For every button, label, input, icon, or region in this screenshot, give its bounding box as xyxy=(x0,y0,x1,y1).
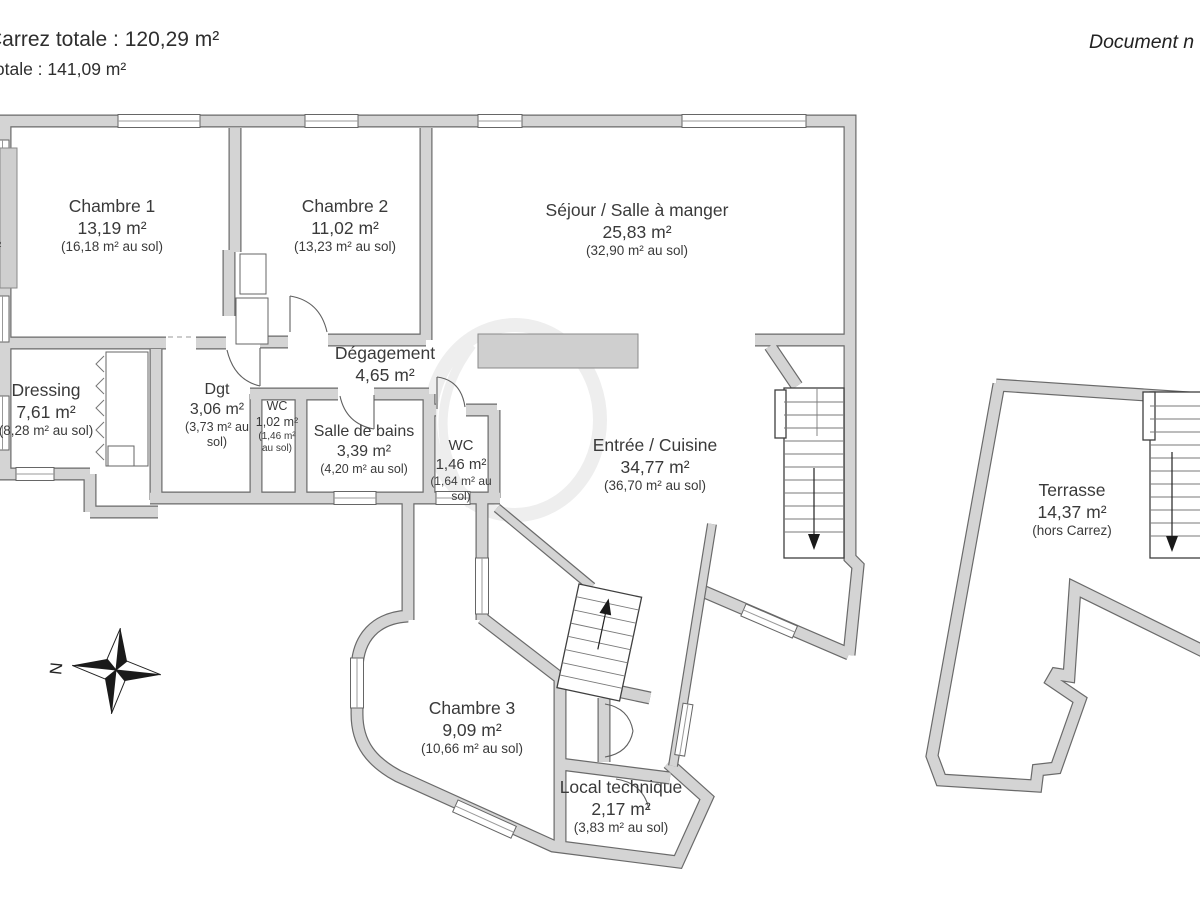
cupboard xyxy=(236,298,268,344)
window-icon xyxy=(682,115,806,128)
cupboard xyxy=(240,254,266,294)
room-label-dgt: Dgt 3,06 m² (3,73 m² au sol) xyxy=(181,380,253,451)
room-label-chambre2: Chambre 2 11,02 m² (13,23 m² au sol) xyxy=(245,196,445,256)
room-label-local-technique: Local technique 2,17 m² (3,83 m² au sol) xyxy=(521,777,721,837)
floorplan-page: N Carrez totale : 120,29 m² totale : 141… xyxy=(0,0,1200,900)
window-icon xyxy=(351,658,364,708)
window-icon xyxy=(118,115,200,128)
door-icon xyxy=(290,296,327,332)
window-icon xyxy=(305,115,358,128)
room-label-chambre3: Chambre 3 9,09 m² (10,66 m² au sol) xyxy=(372,698,572,758)
room-label-sejour: Séjour / Salle à manger 25,83 m² (32,90 … xyxy=(512,200,762,260)
room-label-chambre1: Chambre 1 13,19 m² (16,18 m² au sol) xyxy=(12,196,212,256)
carrez-total-label: Carrez totale : 120,29 m² xyxy=(0,28,219,52)
staircase-interior xyxy=(557,584,642,701)
window-icon xyxy=(16,468,54,481)
kitchen-counter xyxy=(478,334,638,368)
document-note: Document n xyxy=(1089,31,1194,54)
room-label-degagement: Dégagement 4,65 m² xyxy=(310,343,460,386)
window-icon xyxy=(334,492,376,505)
room-label-dressing: Dressing 7,61 m² (8,28 m² au sol) xyxy=(0,380,146,440)
window-icon xyxy=(741,604,798,638)
cut-label: m² xyxy=(0,238,1,254)
shelf-dressing xyxy=(108,446,134,466)
staircase-exterior xyxy=(775,388,844,558)
window-icon xyxy=(0,296,9,342)
window-icon xyxy=(478,115,522,128)
compass-rose: N xyxy=(43,621,165,718)
window-icon xyxy=(476,558,489,614)
room-label-salle-de-bains: Salle de bains 3,39 m² (4,20 m² au sol) xyxy=(294,422,434,477)
room-label-terrasse: Terrasse 14,37 m² (hors Carrez) xyxy=(972,480,1172,540)
room-label-entree: Entrée / Cuisine 34,77 m² (36,70 m² au s… xyxy=(555,435,755,495)
room-label-wc2: WC 1,46 m² (1,64 m² au sol) xyxy=(428,437,494,504)
surface-total-label: totale : 141,09 m² xyxy=(0,59,126,80)
compass-north-label: N xyxy=(46,662,66,676)
